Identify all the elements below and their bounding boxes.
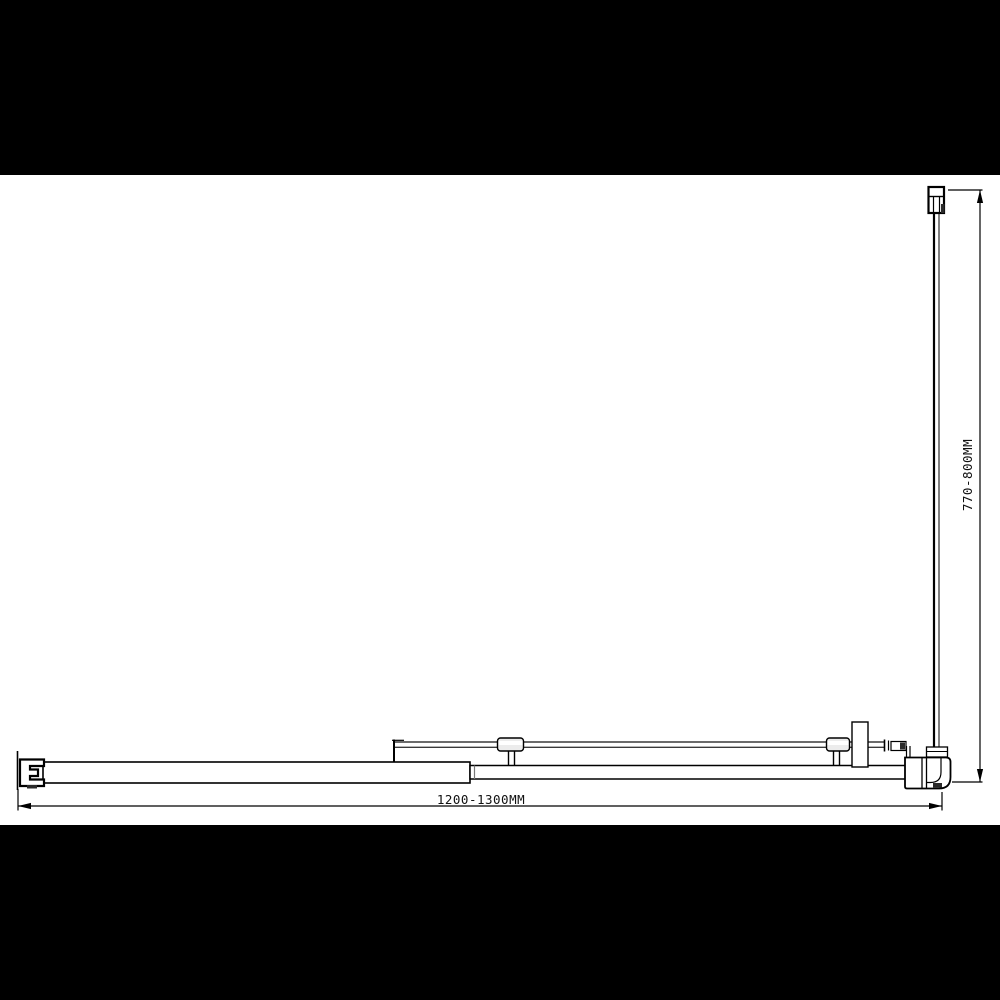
post-shade [933,783,942,788]
screenshot-canvas: 1200-1300MM 770-800MM [0,0,1000,1000]
depth-dimension: 770-800MM [948,190,983,782]
arrow-bottom [977,769,983,782]
support-bracket-1 [498,738,524,766]
corner-post [905,758,951,789]
top-wall-bracket [929,187,945,213]
profile-foot [27,785,37,789]
return-panel-glass [934,212,939,757]
support-bracket-2 [827,738,850,766]
bracket-shade [941,204,945,213]
bottom-glass-clamp [927,747,948,757]
fixed-panel-bar [43,762,470,783]
technical-drawing: 1200-1300MM 770-800MM [0,0,1000,1000]
bar-end-fitting [885,740,911,759]
handle-knob [852,722,868,767]
stabilizer-bar [392,740,884,763]
wall-profile [18,751,45,790]
sliding-panel-bar [470,766,906,780]
arrow-left [18,803,31,809]
depth-dimension-label: 770-800MM [960,439,975,511]
width-dimension: 1200-1300MM [18,789,942,811]
arrow-top [977,190,983,203]
width-dimension-label: 1200-1300MM [437,792,525,807]
arrow-right [929,803,942,809]
